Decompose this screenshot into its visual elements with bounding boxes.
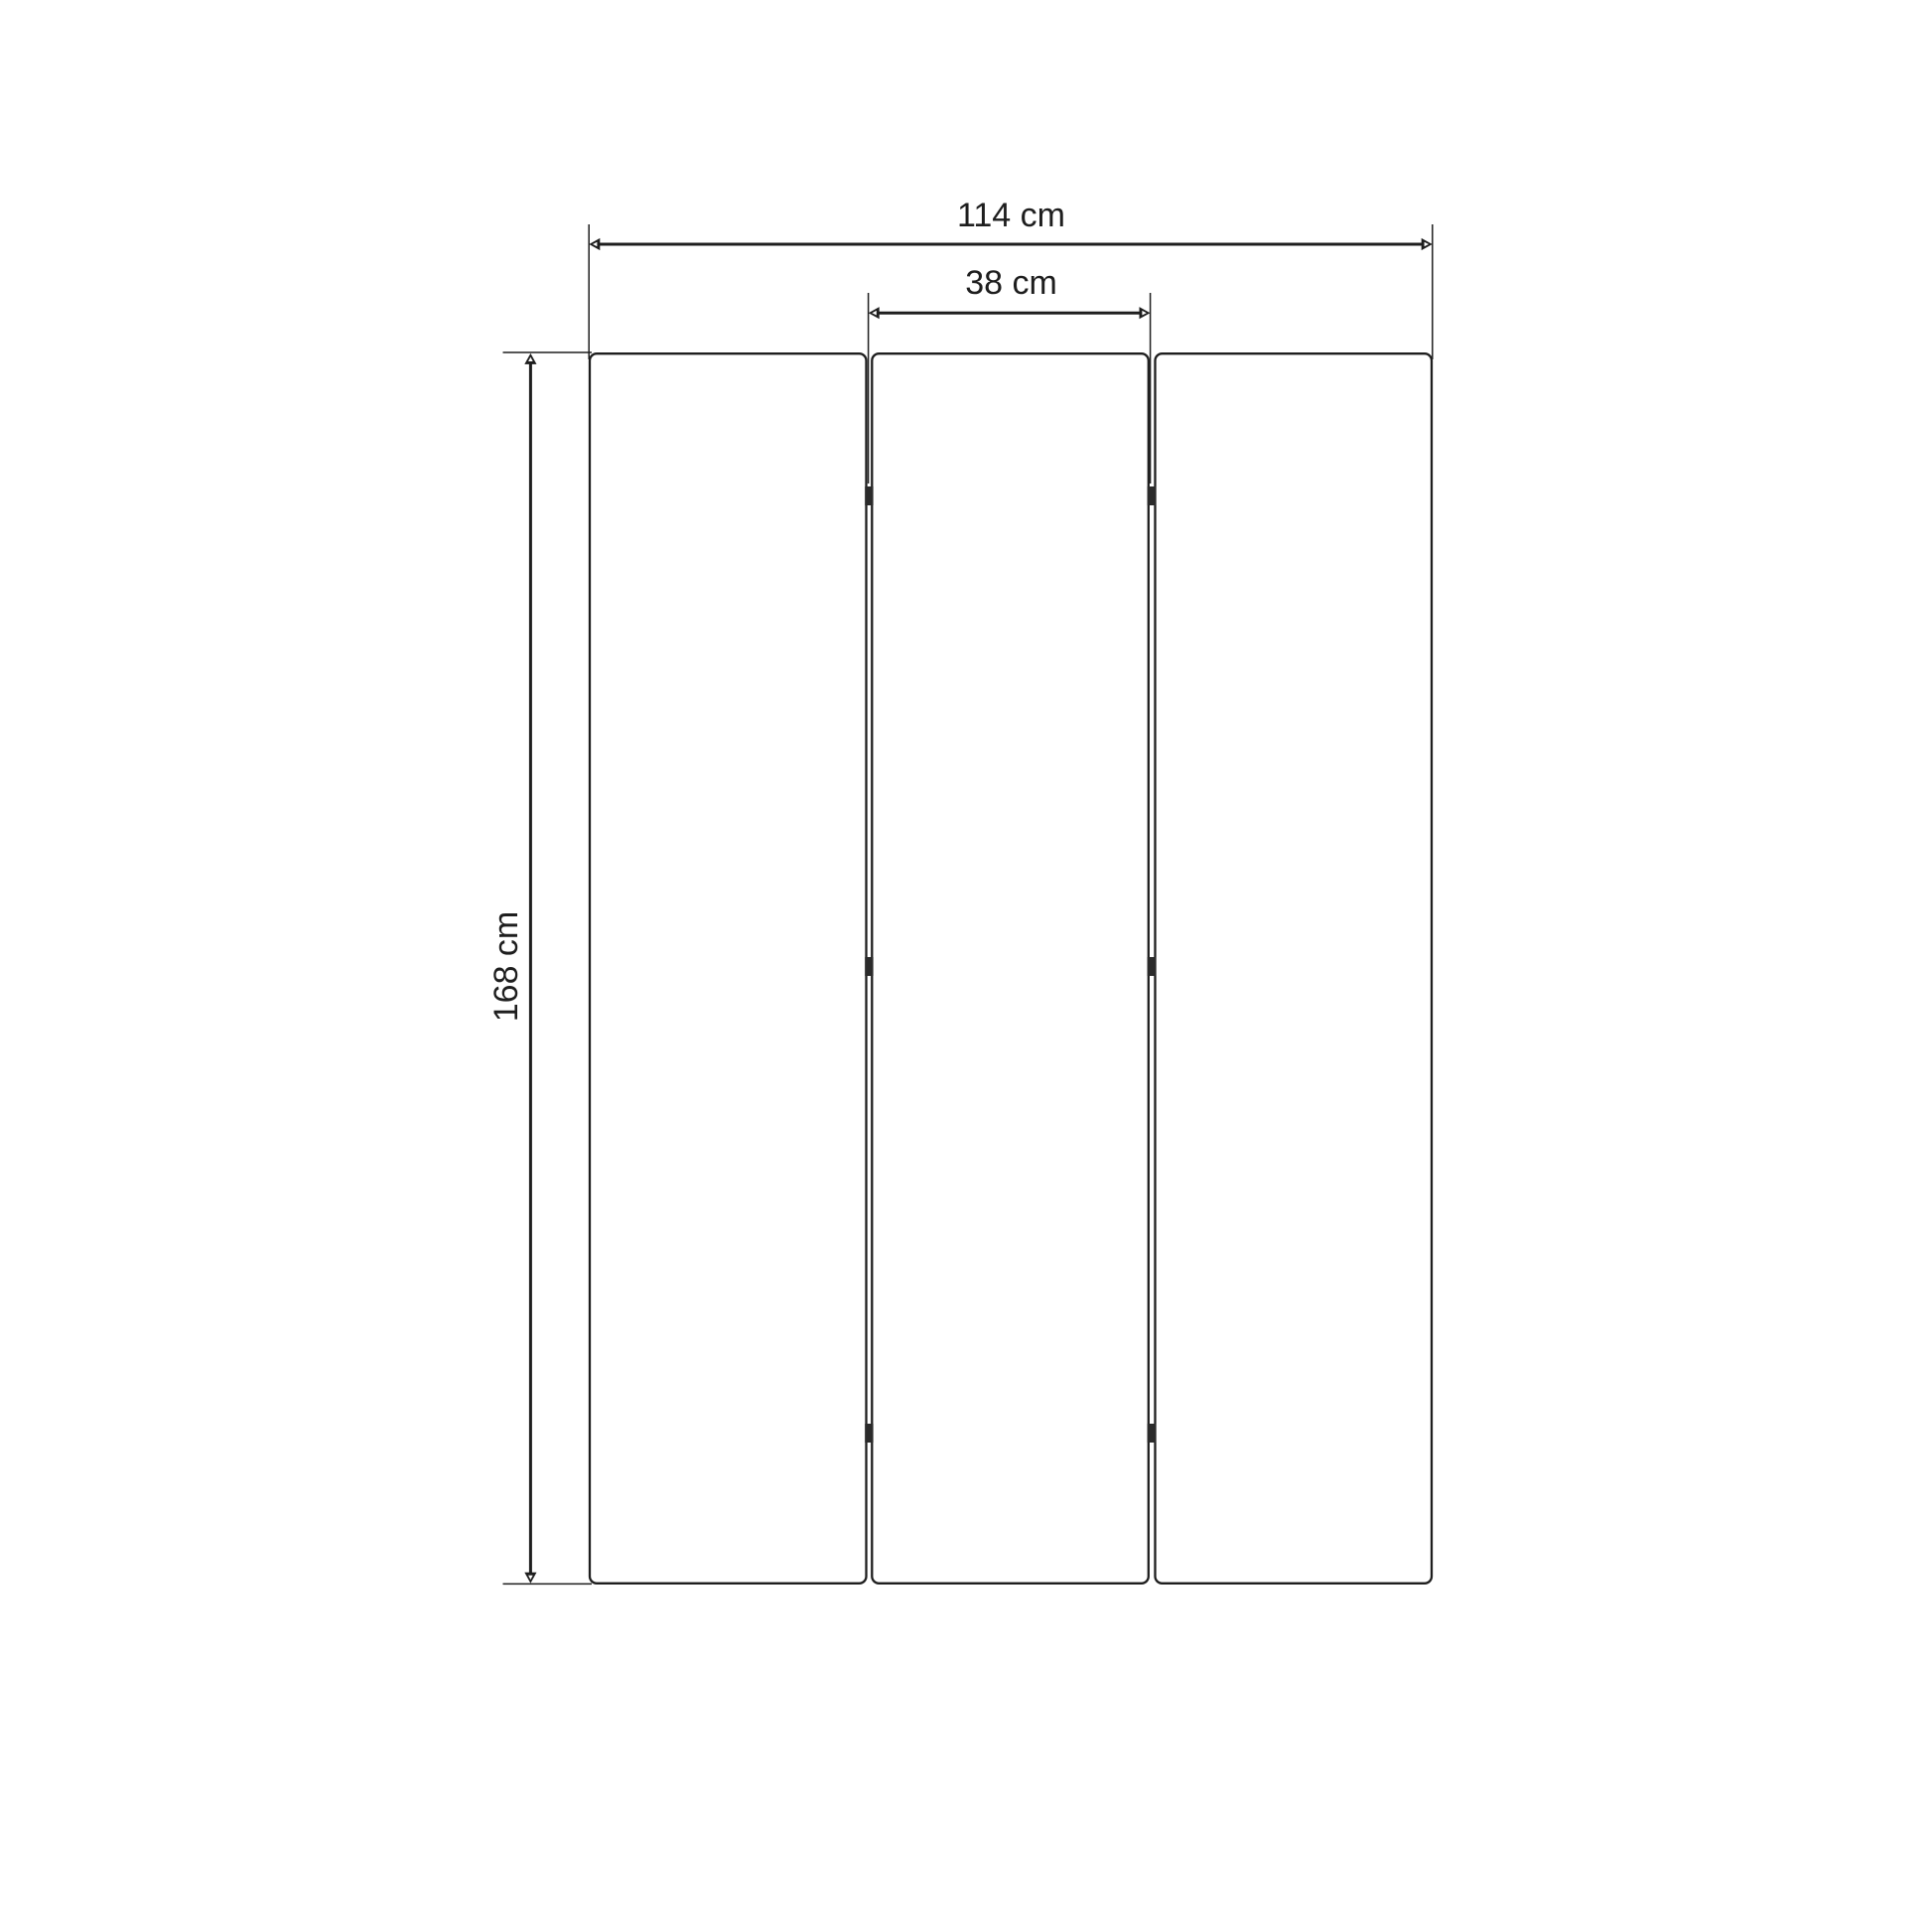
svg-text:114 cm: 114 cm: [957, 197, 1065, 234]
svg-text:38 cm: 38 cm: [965, 264, 1057, 302]
svg-text:168 cm: 168 cm: [487, 911, 525, 1023]
